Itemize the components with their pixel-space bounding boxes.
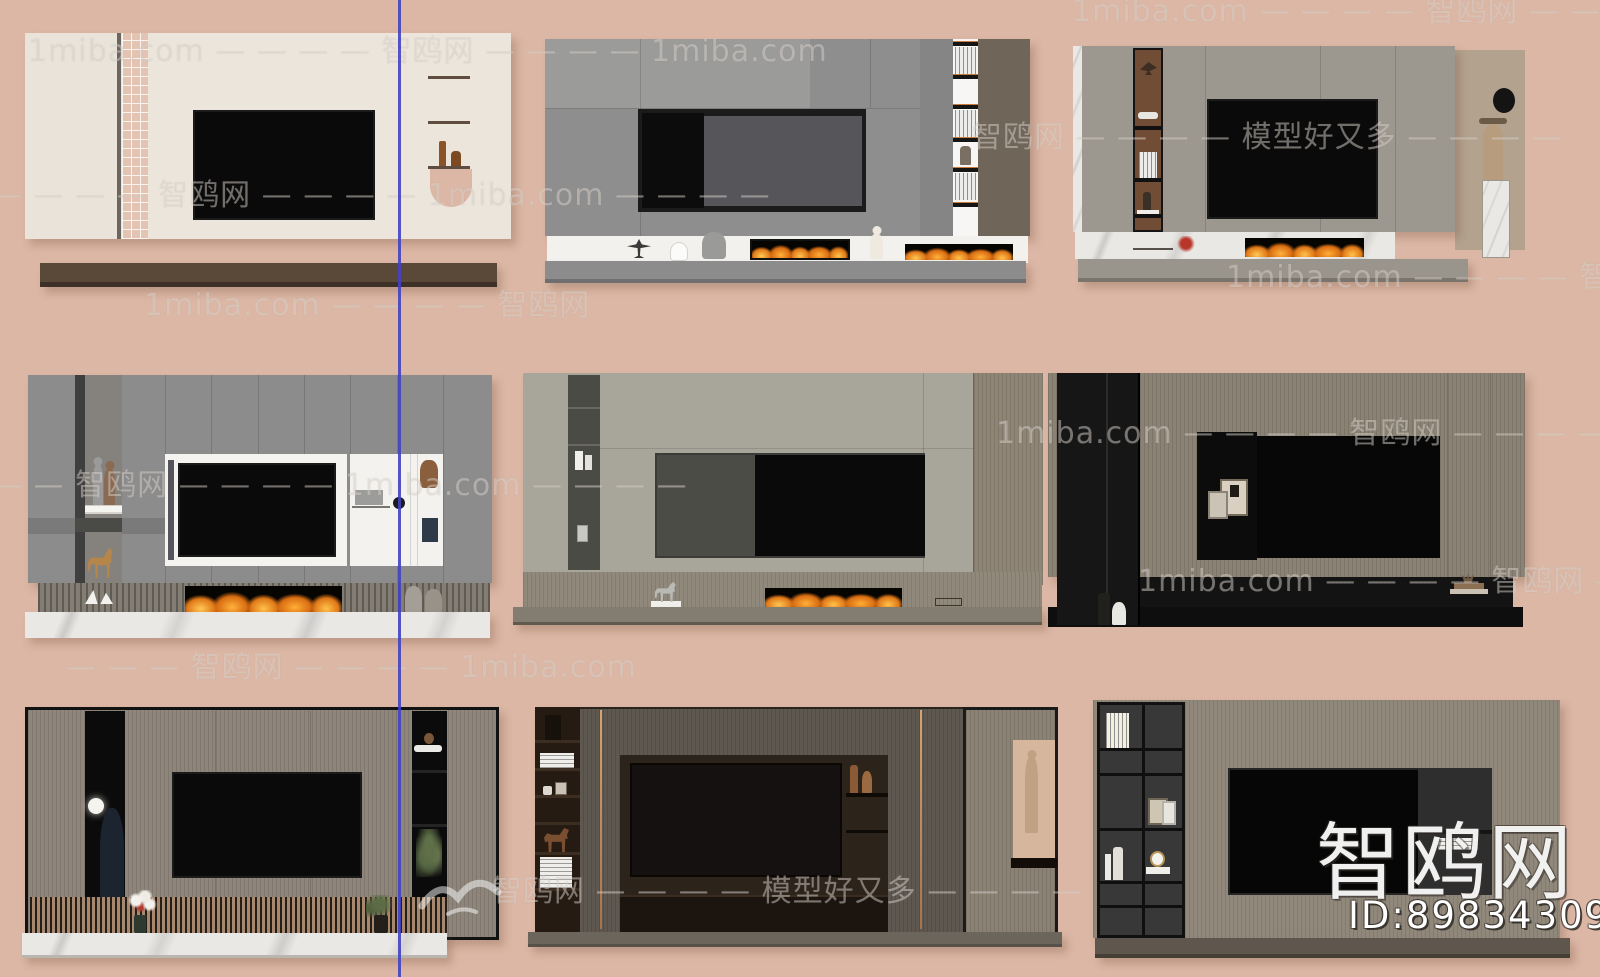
wall-panel <box>545 39 810 108</box>
niche-recess <box>75 375 85 583</box>
balloon-decor <box>1493 88 1515 113</box>
bottle <box>575 451 583 470</box>
decor-dish <box>1138 112 1158 119</box>
tv-screen <box>178 463 336 557</box>
tv-screen <box>704 116 862 206</box>
console-bench <box>40 263 497 287</box>
base-plinth <box>545 261 1026 283</box>
shelf <box>535 888 580 891</box>
shelf <box>1100 748 1182 751</box>
shelf-divider <box>1142 705 1145 935</box>
base-plinth <box>513 607 1042 625</box>
decor-tray <box>935 598 962 606</box>
statue-hat <box>1479 118 1507 124</box>
base-plinth <box>528 932 1062 947</box>
grid-bookshelf <box>1097 702 1185 938</box>
book-box <box>422 518 438 542</box>
fireplace <box>765 588 902 607</box>
bird-figurine <box>670 242 688 261</box>
tv-screen <box>172 772 362 878</box>
tv-wall-design-2 <box>545 39 1030 283</box>
panel-seam <box>1490 373 1491 577</box>
tv-recess <box>620 755 888 895</box>
shelf-divider <box>410 454 411 566</box>
bird-art <box>1140 62 1157 75</box>
plant <box>366 895 394 917</box>
bookshelf-column <box>953 39 978 236</box>
book-stack <box>540 753 574 768</box>
niche-shelf <box>428 76 470 79</box>
tv-screen <box>1257 436 1440 558</box>
product-gallery-image: { "canvas": { "background_color": "#dcb7… <box>0 0 1600 977</box>
speaker-box <box>545 715 561 740</box>
wood-side-panel <box>973 373 1043 585</box>
sketch-table <box>1133 248 1173 250</box>
display-niche <box>1133 48 1163 232</box>
shelf <box>568 444 600 446</box>
tv-wall-design-1 <box>25 33 511 287</box>
accent-light-strip <box>920 710 922 929</box>
console-band <box>523 572 1042 607</box>
niche-base <box>1011 858 1057 868</box>
tv-wall-design-8 <box>528 707 1062 947</box>
shelf <box>846 793 888 797</box>
ball-decor <box>424 733 434 744</box>
shelf <box>953 74 978 79</box>
vase <box>100 808 124 897</box>
bottle <box>1143 192 1151 212</box>
picture-frame <box>555 782 567 795</box>
bottle <box>1105 854 1111 880</box>
vase <box>850 765 858 793</box>
speaker-box <box>355 490 383 505</box>
flower-pot <box>134 915 146 933</box>
tv-recess <box>642 113 704 208</box>
books <box>955 47 976 74</box>
shelf <box>953 202 978 207</box>
horse-figurine <box>655 582 678 602</box>
book-stack <box>85 505 122 514</box>
rabbit-figurine <box>702 232 726 259</box>
vase <box>1112 602 1126 625</box>
niche-recess <box>85 711 125 897</box>
books <box>1139 152 1157 178</box>
picture-frame <box>1162 801 1176 825</box>
slat-band <box>30 897 447 933</box>
wall-panel <box>25 33 117 239</box>
niche-shelf <box>75 518 122 532</box>
shelf <box>535 795 580 798</box>
statue-pedestal <box>1482 180 1510 258</box>
panel-seam <box>1205 46 1206 232</box>
panel-seam <box>870 39 871 108</box>
book-stack <box>1450 589 1488 594</box>
picture-frame <box>1208 491 1228 519</box>
marble-edge <box>1073 46 1082 232</box>
books <box>955 110 976 137</box>
shelf <box>1100 828 1182 831</box>
tv-screen <box>193 110 375 220</box>
sphere-lamp <box>88 798 104 814</box>
girl-figurine <box>870 234 883 259</box>
marble-base <box>22 933 447 958</box>
shelf-column <box>568 375 600 570</box>
book-stack <box>1454 583 1484 589</box>
plant-pot <box>374 915 388 933</box>
statue-figure <box>93 465 103 506</box>
shelf <box>953 137 978 142</box>
tile-grid-strip <box>122 33 148 239</box>
vase <box>439 141 446 166</box>
media-shelf <box>1140 577 1513 607</box>
shelf <box>535 740 580 743</box>
fireplace <box>750 239 850 260</box>
shelf <box>953 167 978 172</box>
frame-strip <box>168 460 174 560</box>
statue-figure <box>1025 758 1038 833</box>
wall-panel <box>920 39 953 236</box>
display-niche <box>1013 740 1055 865</box>
clock-decor <box>1150 851 1165 867</box>
side-panel <box>963 707 1058 940</box>
panel-seam <box>1395 46 1396 232</box>
shelf <box>953 41 978 46</box>
tv-wall-design-4 <box>25 375 492 638</box>
shelf <box>1100 881 1182 884</box>
tv-wall-design-5 <box>513 373 1042 625</box>
panel-seam <box>600 448 973 449</box>
book-stack <box>1146 867 1170 874</box>
shelf <box>1135 126 1161 130</box>
decor-dish <box>414 745 442 752</box>
dog-figurine <box>544 828 570 852</box>
bottle <box>585 455 592 470</box>
vase <box>1113 847 1123 880</box>
red-art-piece <box>1175 236 1197 253</box>
panel-seam <box>1447 373 1448 577</box>
shelf <box>846 830 888 833</box>
watermark-row: — — — 智鸥网 — — — — 1miba.com <box>66 642 637 686</box>
console-shelf <box>547 236 1028 263</box>
shelf <box>535 822 580 825</box>
shelf <box>953 104 978 109</box>
glass-decor <box>577 525 588 542</box>
shelf <box>1135 214 1161 218</box>
cup <box>543 786 552 795</box>
bear-figurine <box>420 460 438 488</box>
accent-light-strip <box>600 710 602 929</box>
marble-base <box>25 612 490 638</box>
watermark-row: 1miba.com — — — — 智鸥网 — — — — — <box>1072 0 1600 30</box>
base-plinth <box>1095 938 1570 958</box>
fireplace <box>1245 238 1364 257</box>
statue-figure <box>1483 126 1503 180</box>
shelf <box>1100 905 1182 908</box>
tv-wall-design-6 <box>1048 373 1525 627</box>
shelf <box>1100 773 1182 776</box>
shelf <box>535 852 580 855</box>
teddy-figurine <box>960 146 971 165</box>
magazines <box>540 857 572 888</box>
shelf-column <box>535 707 580 932</box>
media-cabinet <box>620 895 888 932</box>
tv-screen <box>630 763 842 877</box>
panel-divider <box>117 33 121 239</box>
tall-cabinet <box>1057 373 1140 625</box>
tv-wall-design-3 <box>1073 46 1525 282</box>
vase <box>862 771 872 793</box>
tv-screen <box>1207 99 1378 219</box>
frame-art <box>1230 485 1239 497</box>
fireplace <box>905 244 1013 260</box>
bottle <box>1098 593 1110 625</box>
shelf <box>412 770 447 773</box>
statue-figure <box>104 469 115 506</box>
eagle-sculpture <box>627 239 651 258</box>
shelf <box>568 407 600 409</box>
flower-bouquet <box>127 890 157 916</box>
vase <box>451 151 461 166</box>
shelf <box>412 824 447 827</box>
shelf-unit <box>350 454 443 566</box>
stone-decor <box>405 586 422 612</box>
books <box>955 173 976 200</box>
model-id-watermark: ID:898343095 <box>1348 894 1600 937</box>
console-table <box>352 506 390 508</box>
stone-decor <box>425 589 442 612</box>
panel-seam <box>443 375 444 583</box>
base-plinth <box>1078 259 1468 282</box>
shelf <box>1135 178 1161 182</box>
console-shelf <box>1075 232 1395 259</box>
shelf-divider <box>417 454 418 566</box>
shelf <box>535 768 580 771</box>
seagull-logo-icon <box>418 866 502 928</box>
vertical-divider-line <box>398 0 401 977</box>
tv-screen <box>755 455 925 556</box>
books <box>1106 713 1129 748</box>
niche-shelf <box>428 121 470 124</box>
cabinet-seam <box>1106 373 1108 625</box>
wall-panel <box>978 39 1030 236</box>
fire-logs <box>185 586 342 612</box>
